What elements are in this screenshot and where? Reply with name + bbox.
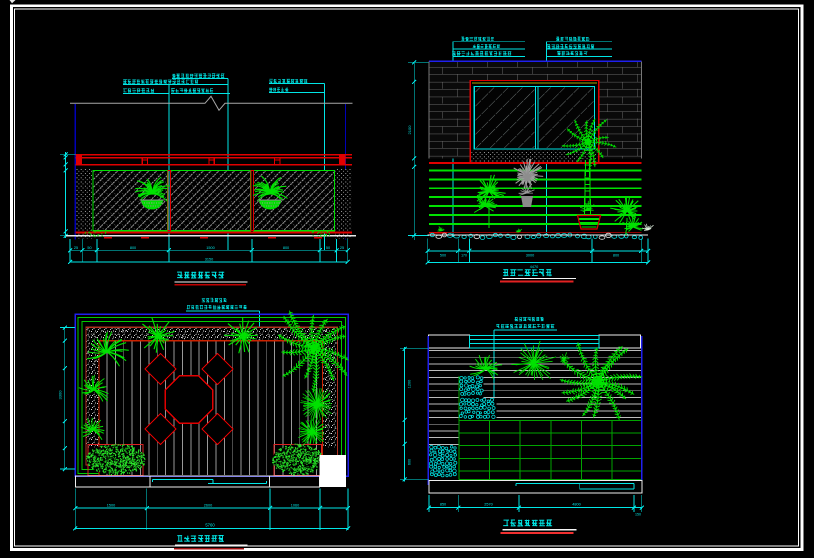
- svg-text:150: 150: [635, 513, 641, 517]
- svg-text:800: 800: [283, 246, 289, 250]
- svg-text:5760: 5760: [205, 523, 215, 528]
- svg-text:800: 800: [613, 254, 619, 258]
- svg-text:850: 850: [440, 503, 446, 507]
- svg-text:1500: 1500: [107, 503, 115, 507]
- svg-text:1500: 1500: [206, 246, 214, 250]
- svg-text:4800: 4800: [572, 503, 580, 507]
- svg-text:4470: 4470: [530, 265, 538, 269]
- svg-text:2100: 2100: [407, 125, 412, 135]
- svg-text:500: 500: [440, 254, 446, 258]
- svg-text:2600: 2600: [204, 503, 212, 507]
- svg-text:3150: 3150: [205, 257, 213, 261]
- svg-text:1060: 1060: [291, 503, 299, 507]
- svg-text:170: 170: [461, 254, 467, 258]
- svg-text:600: 600: [408, 459, 412, 465]
- svg-text:2570: 2570: [484, 503, 492, 507]
- svg-text:3000: 3000: [526, 254, 534, 258]
- svg-text:1200: 1200: [408, 380, 412, 388]
- svg-text:25: 25: [74, 246, 78, 250]
- svg-text:3300: 3300: [58, 390, 63, 400]
- svg-text:50: 50: [326, 246, 330, 250]
- svg-text:800: 800: [130, 246, 136, 250]
- svg-text:50: 50: [87, 246, 91, 250]
- svg-text:25: 25: [340, 246, 344, 250]
